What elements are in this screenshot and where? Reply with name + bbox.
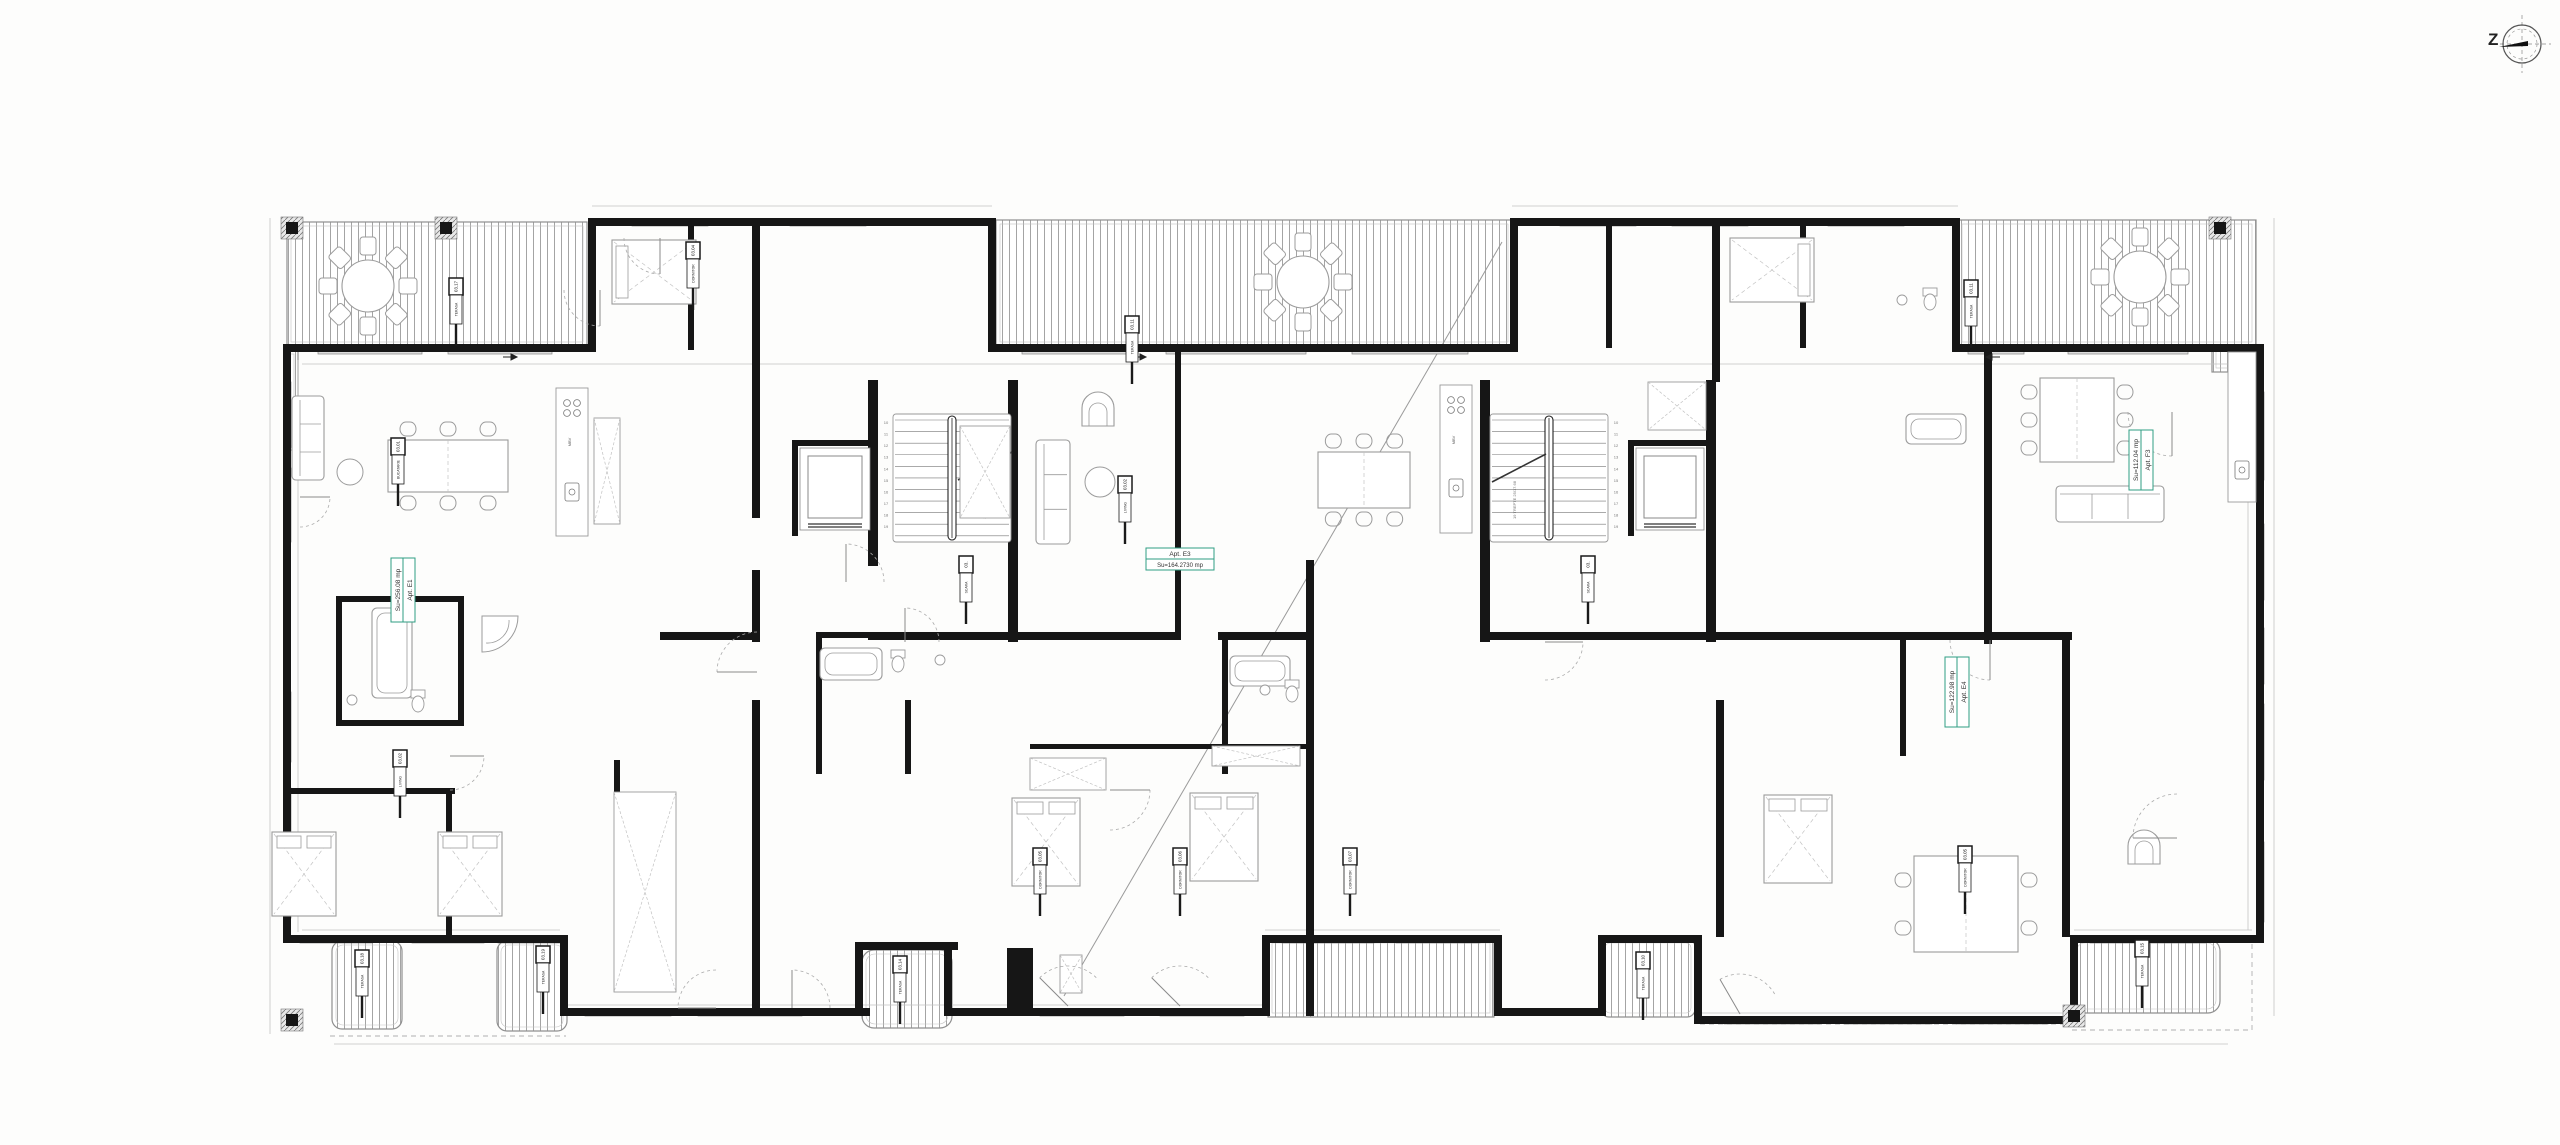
room-tag-number: 03. bbox=[964, 561, 969, 567]
room-tag-name: TERASA bbox=[455, 302, 459, 316]
room-tag-name: LIVING bbox=[399, 776, 403, 787]
room-tag-number: 03.17 bbox=[454, 280, 459, 292]
room-tag-number: 03.05 bbox=[1038, 850, 1043, 862]
wall bbox=[944, 942, 952, 1014]
room-tag-name: TERASA bbox=[361, 974, 365, 988]
armchair bbox=[1082, 392, 1114, 426]
wall bbox=[283, 344, 595, 352]
wall bbox=[560, 1008, 870, 1016]
wardrobe bbox=[960, 426, 1010, 518]
apartment-area-text: Su=256.08 mp bbox=[395, 568, 402, 611]
room-tag-name: SCARA bbox=[1587, 581, 1591, 593]
wall bbox=[1606, 218, 1612, 348]
wall bbox=[1262, 935, 1270, 1015]
sink bbox=[935, 655, 945, 665]
stair-tread-number: 15 bbox=[884, 478, 889, 483]
wall bbox=[1510, 218, 1960, 226]
bed bbox=[1190, 793, 1258, 881]
wall bbox=[988, 218, 996, 352]
bathtub bbox=[820, 648, 882, 680]
sofa bbox=[2056, 486, 2164, 522]
wall bbox=[1494, 935, 1502, 1015]
wall bbox=[905, 700, 911, 774]
wall bbox=[1952, 344, 2264, 352]
wall bbox=[336, 720, 464, 726]
kitchen-counter bbox=[2228, 352, 2256, 502]
room-tag-name: DORMITOR bbox=[1179, 870, 1183, 889]
bathtub bbox=[1906, 414, 1966, 444]
round-table-with-chairs bbox=[319, 237, 417, 335]
wardrobe bbox=[1060, 955, 1082, 993]
column-marker bbox=[2063, 1005, 2085, 1027]
kitchen-counter: MBV bbox=[556, 388, 588, 536]
sink bbox=[347, 695, 357, 705]
stair-tread-number: 14 bbox=[884, 466, 889, 471]
wall bbox=[2070, 935, 2264, 943]
apartment-label: Su=256.08 mpApt. E1 bbox=[391, 558, 415, 622]
room-tag-name: DORMITOR bbox=[1349, 870, 1353, 889]
room-tag-number: 03.04 bbox=[691, 244, 696, 256]
wall bbox=[792, 440, 876, 446]
wall bbox=[862, 942, 958, 950]
wall bbox=[1716, 700, 1724, 937]
room-tag-name: TERASA bbox=[542, 970, 546, 984]
room-tag-number: 03.10 bbox=[1641, 954, 1646, 966]
wall bbox=[458, 596, 464, 726]
sink bbox=[1897, 295, 1907, 305]
wall bbox=[1952, 218, 1960, 352]
bed bbox=[612, 240, 696, 304]
toilet bbox=[411, 690, 425, 712]
room-tag-name: TERASA bbox=[1970, 304, 1974, 318]
stair-tread-number: 19 bbox=[884, 524, 889, 529]
wardrobe bbox=[614, 792, 676, 992]
wall bbox=[1628, 440, 1634, 536]
wardrobe bbox=[594, 418, 620, 524]
room-tag-number: 03.11 bbox=[1969, 283, 1974, 294]
wall bbox=[660, 632, 756, 640]
room-tag-number: 03.11 bbox=[1130, 319, 1135, 330]
wall bbox=[1712, 218, 1720, 382]
wall bbox=[1480, 380, 1490, 642]
wall bbox=[1716, 632, 1988, 640]
room-tag-number: 03.18 bbox=[360, 952, 365, 964]
sofa bbox=[1036, 440, 1070, 544]
wall bbox=[1706, 380, 1716, 642]
wall bbox=[1175, 352, 1181, 640]
apartment-area-text: Su=122.98 mp bbox=[1949, 670, 1956, 713]
wall bbox=[1218, 632, 1310, 640]
column-marker bbox=[2209, 217, 2231, 239]
stair-tread-number: 14 bbox=[1614, 466, 1619, 471]
wardrobe bbox=[1212, 746, 1300, 766]
wall bbox=[1494, 1008, 1606, 1016]
room-tag-name: SCARA bbox=[965, 581, 969, 593]
room-tag-name: DORMITOR bbox=[1039, 870, 1043, 889]
wall bbox=[336, 596, 342, 726]
kitchen-label: MBV bbox=[1451, 435, 1456, 444]
room-tag-name: DORMITOR bbox=[692, 264, 696, 283]
wall bbox=[283, 788, 455, 794]
room-tag-number: 03.02 bbox=[1123, 478, 1128, 490]
sink bbox=[1260, 685, 1270, 695]
room-tag-name: DORMITOR bbox=[1964, 868, 1968, 887]
apartment-name-text: Apt. F3 bbox=[2145, 449, 2152, 470]
wall bbox=[2062, 640, 2070, 937]
room-tag-name: LIVING bbox=[1124, 502, 1128, 513]
wall bbox=[1628, 440, 1712, 446]
room-tag-name: BUCATARIE bbox=[397, 459, 401, 479]
room-tag-number: 03. bbox=[1586, 561, 1591, 567]
coffee-table bbox=[337, 459, 363, 485]
elevator bbox=[800, 448, 870, 530]
apartment-name-text: Apt. E3 bbox=[1169, 551, 1191, 558]
apartment-label: Apt. E3Su=164.2730 mp bbox=[1146, 548, 1214, 570]
wall bbox=[1694, 935, 1702, 1023]
apartment-area-text: Su=112.04 mp bbox=[2133, 439, 2140, 481]
sofa bbox=[292, 396, 324, 480]
round-table-with-chairs bbox=[2091, 228, 2189, 326]
column-marker bbox=[281, 1009, 303, 1031]
room-tag-number: 03.14 bbox=[898, 958, 903, 970]
room-tag-number: 03.02 bbox=[398, 752, 403, 764]
north-indicator-letter: Z bbox=[2488, 30, 2498, 50]
room-tag-number: 03.01 bbox=[396, 440, 401, 452]
wall bbox=[1510, 218, 1518, 352]
wall bbox=[1598, 935, 1606, 1015]
room-tag-number: 03.19 bbox=[541, 948, 546, 960]
wall bbox=[1986, 632, 2072, 640]
floor-plan-drawing: 1011121314151617181919 TREPTE 25/17.6810… bbox=[0, 0, 2560, 1145]
round-table-with-chairs bbox=[1254, 233, 1352, 331]
wall bbox=[283, 935, 566, 943]
wall bbox=[855, 942, 863, 1014]
coffee-table bbox=[1085, 467, 1115, 497]
column-marker bbox=[435, 217, 457, 239]
apartment-label: Su=112.04 mpApt. F3 bbox=[2129, 430, 2153, 490]
wall bbox=[1984, 352, 1992, 644]
stair-tread-number: 10 bbox=[1614, 420, 1619, 425]
dining-table-with-chairs bbox=[1318, 434, 1410, 526]
wall bbox=[1694, 1016, 2078, 1024]
stair-tread-number: 16 bbox=[884, 489, 889, 494]
room-tag-name: TERASA bbox=[2141, 964, 2145, 978]
wall bbox=[752, 700, 760, 1016]
floor-plan-page: 1011121314151617181919 TREPTE 25/17.6810… bbox=[0, 0, 2560, 1145]
apartment-name-text: Apt. E1 bbox=[407, 579, 414, 601]
room-tag-number: 03.05 bbox=[1963, 848, 1968, 860]
wall bbox=[1306, 560, 1314, 1016]
toilet bbox=[1923, 288, 1937, 310]
wall bbox=[752, 218, 760, 518]
stair-tread-number: 10 bbox=[884, 420, 889, 425]
stair-tread-number: 19 bbox=[1614, 524, 1619, 529]
stair-tread-number: 13 bbox=[884, 455, 889, 460]
stair-tread-number: 15 bbox=[1614, 478, 1619, 483]
stair-tread-number: 12 bbox=[884, 443, 889, 448]
stair-tread-number: 12 bbox=[1614, 443, 1619, 448]
apartment-label: Su=122.98 mpApt. E4 bbox=[1945, 657, 1969, 727]
wall bbox=[588, 218, 994, 226]
stair-tread-number: 18 bbox=[1614, 513, 1619, 518]
wall bbox=[1007, 948, 1033, 1010]
wardrobe bbox=[1648, 382, 1706, 430]
stair-tread-number: 18 bbox=[884, 513, 889, 518]
wall bbox=[988, 344, 1516, 352]
bathtub bbox=[1230, 656, 1290, 686]
apartment-area-text: Su=164.2730 mp bbox=[1157, 563, 1204, 569]
wardrobe bbox=[1030, 758, 1106, 790]
room-tag-number: 03.15 bbox=[2140, 942, 2145, 954]
terrace-hatch-area bbox=[1268, 939, 1494, 1017]
wall bbox=[752, 570, 760, 642]
bed bbox=[438, 832, 502, 916]
bed bbox=[1730, 238, 1814, 302]
staircase: 1011121314151617181919 TREPTE 25/17.68 bbox=[1490, 414, 1619, 542]
wall bbox=[1598, 935, 1702, 943]
wall bbox=[1480, 632, 1714, 640]
room-tag-name: TERASA bbox=[899, 980, 903, 994]
stair-tread-number: 16 bbox=[1614, 489, 1619, 494]
apartment-name-text: Apt. E4 bbox=[1961, 681, 1968, 703]
toilet bbox=[1285, 680, 1299, 702]
terrace-hatch-area bbox=[497, 941, 567, 1031]
stair-tread-number: 17 bbox=[884, 501, 889, 506]
wall bbox=[2256, 344, 2264, 943]
wall bbox=[792, 440, 798, 536]
room-tag-number: 03.07 bbox=[1348, 850, 1353, 862]
toilet bbox=[891, 650, 905, 672]
wall bbox=[588, 218, 596, 352]
bed bbox=[1764, 795, 1832, 883]
room-tag-name: TERASA bbox=[1131, 340, 1135, 354]
elevator bbox=[1636, 448, 1704, 530]
stair-tread-number: 13 bbox=[1614, 455, 1619, 460]
room-tag-number: 03.06 bbox=[1178, 850, 1183, 862]
bed bbox=[272, 832, 336, 916]
wall bbox=[560, 935, 568, 1015]
column-marker bbox=[281, 217, 303, 239]
stair-tread-number: 17 bbox=[1614, 501, 1619, 506]
wall bbox=[944, 1008, 1270, 1016]
room-tag-name: TERASA bbox=[1642, 976, 1646, 990]
kitchen-label: MBV bbox=[567, 437, 572, 446]
wall bbox=[1018, 632, 1180, 640]
wall bbox=[1900, 638, 1906, 756]
kitchen-counter: MBV bbox=[1440, 385, 1472, 533]
wall bbox=[816, 632, 1022, 638]
wall bbox=[1262, 935, 1502, 943]
stair-label: 19 TREPTE 25/17.68 bbox=[1512, 480, 1517, 519]
